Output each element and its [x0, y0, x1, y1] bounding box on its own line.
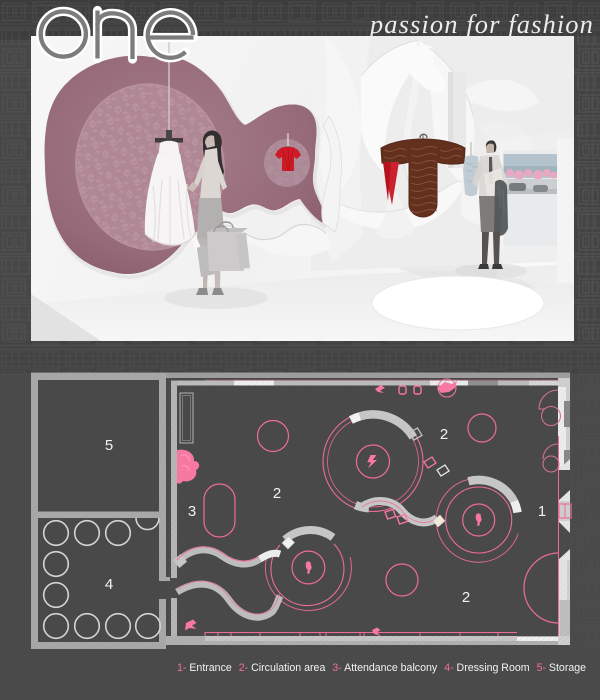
svg-text:4: 4 — [105, 576, 113, 593]
svg-text:5: 5 — [105, 437, 113, 454]
svg-text:2: 2 — [462, 589, 470, 606]
svg-text:2: 2 — [273, 485, 281, 502]
svg-text:3: 3 — [188, 503, 196, 520]
svg-text:1: 1 — [538, 503, 546, 520]
svg-text:2: 2 — [440, 426, 448, 443]
